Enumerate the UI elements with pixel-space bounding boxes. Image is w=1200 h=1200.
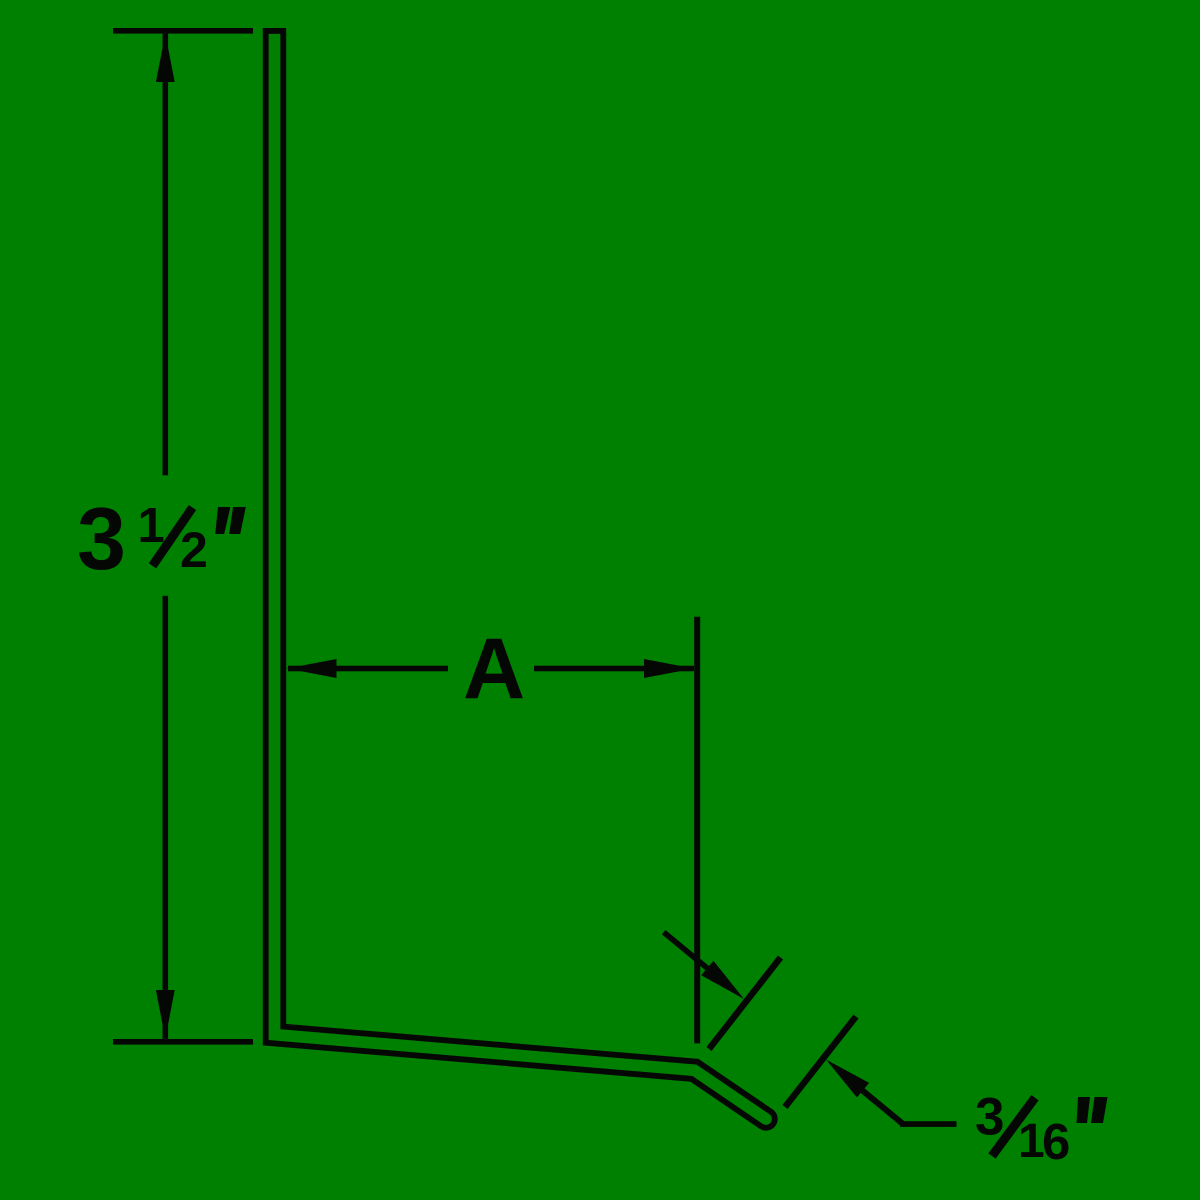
svg-text:2: 2 (180, 522, 208, 578)
svg-text:1: 1 (1018, 1115, 1045, 1168)
svg-text:1: 1 (138, 499, 165, 553)
svg-text:6: 6 (1042, 1113, 1070, 1170)
svg-text:3: 3 (77, 489, 126, 588)
svg-text:A: A (463, 621, 525, 717)
